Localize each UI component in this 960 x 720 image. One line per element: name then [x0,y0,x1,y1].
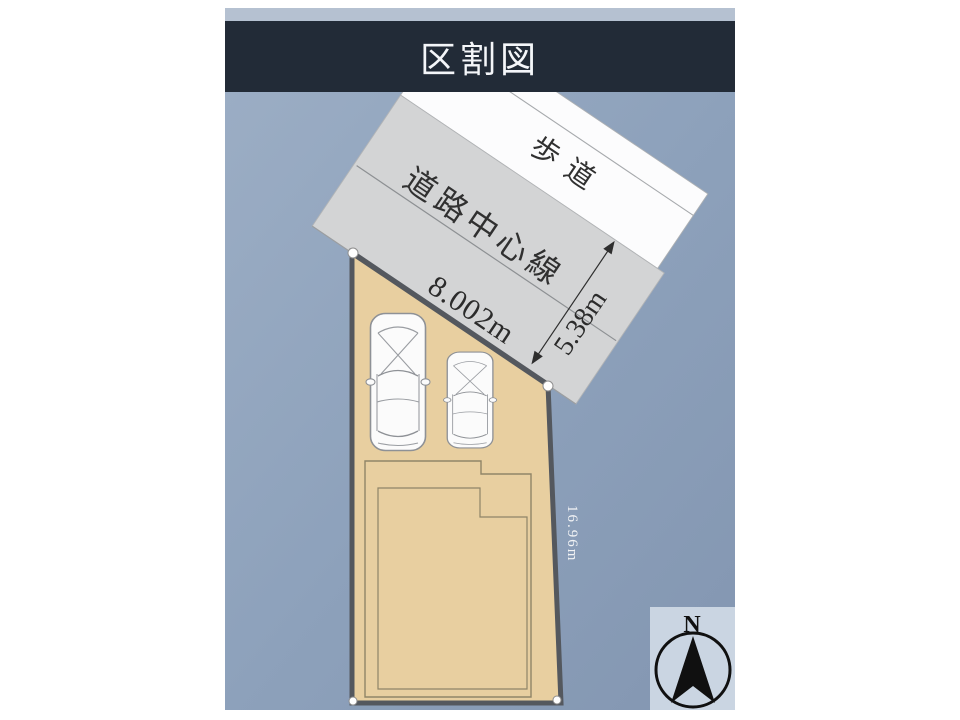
boundary-marker-bottom-left [349,697,357,705]
title-bar: 区割図 [225,21,735,92]
page-title: 区割図 [420,31,540,83]
boundary-marker-top-right [543,381,553,391]
car-small [444,352,497,448]
diagram-canvas: 8.002m 道路中心線 歩道 5.38m [225,92,735,710]
boundary-marker-bottom-right [553,696,561,704]
boundary-marker-top-left [348,248,358,258]
plot-division-image: 区割図 [225,8,735,710]
image-top-strip [225,8,735,21]
compass: N [650,607,735,710]
page-background: 区割図 [0,0,960,720]
car-large [366,314,430,451]
label-side-dimension: 16.96m [564,505,580,562]
site-plan-svg: 8.002m 道路中心線 歩道 5.38m [225,92,735,710]
